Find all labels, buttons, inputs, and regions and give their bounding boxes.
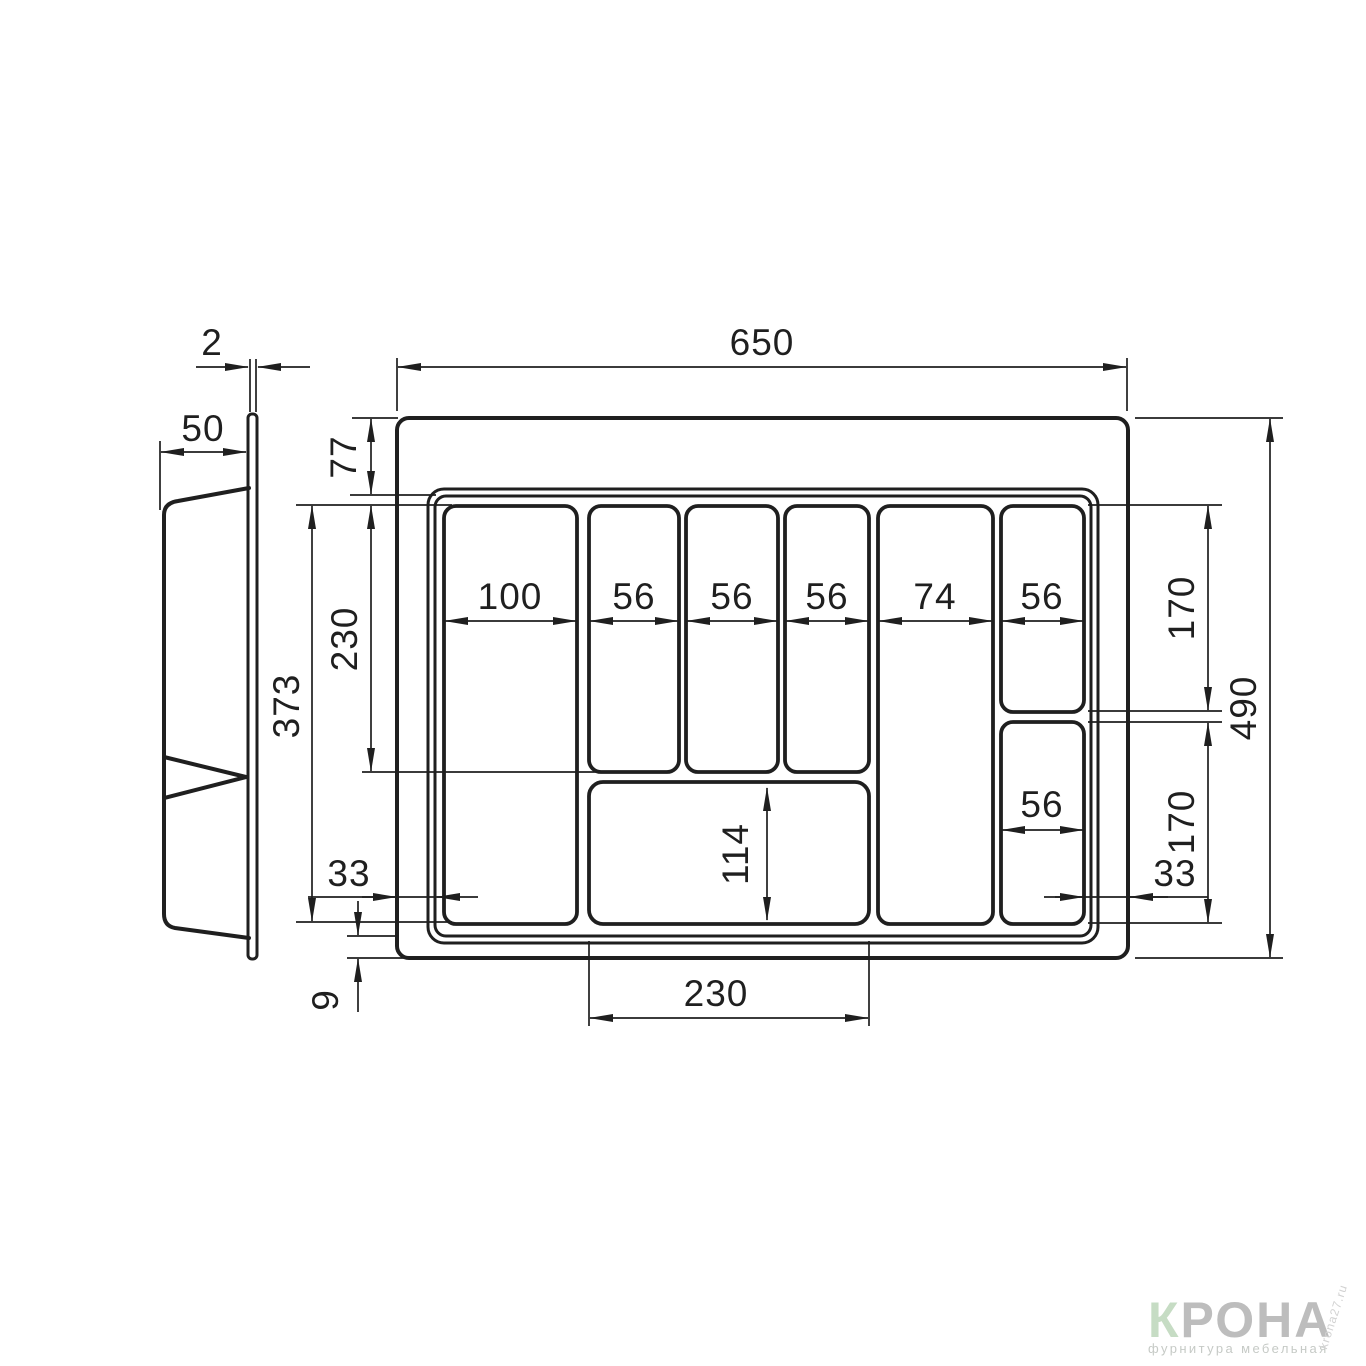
side-plate-outline xyxy=(248,414,257,959)
dim-label-col3: 56 xyxy=(710,576,753,617)
dim-label-bottom-slot-width: 230 xyxy=(684,973,749,1014)
compartment-1 xyxy=(444,506,577,924)
dim-top-rim: 77 xyxy=(323,418,436,495)
dim-label-right-bottom-slot-width: 56 xyxy=(1020,784,1063,825)
dim-label-col5: 74 xyxy=(913,576,956,617)
dim-left-inset: 33 xyxy=(308,853,478,897)
watermark-brand-initial: К xyxy=(1148,1292,1181,1348)
dim-overall-width: 650 xyxy=(397,322,1127,411)
side-profile-view: 2 50 xyxy=(160,322,310,959)
dim-label-upper-row-depth: 230 xyxy=(324,607,365,672)
dim-label-plate-thickness: 2 xyxy=(201,322,223,363)
dim-upper-row-depth: 230 xyxy=(296,505,600,772)
dim-label-overall-depth: 490 xyxy=(1223,676,1264,741)
compartment-2 xyxy=(589,506,679,772)
dim-label-col6: 56 xyxy=(1020,576,1063,617)
watermark-tagline: фурнитура мебельная xyxy=(1148,1341,1329,1356)
dim-bottom-slot-width: 230 xyxy=(589,941,869,1026)
technical-drawing: 2 50 650 xyxy=(0,0,1366,1366)
drawing-canvas: 2 50 650 xyxy=(0,0,1366,1366)
compartment-5 xyxy=(878,506,993,924)
dim-right-bottom-slot-width: 56 xyxy=(1002,784,1083,830)
dim-label-right-bottom-slot-depth: 170 xyxy=(1161,790,1202,855)
side-rib-notch xyxy=(164,757,246,798)
dim-right-top-slot-depth: 170 xyxy=(1088,505,1222,711)
watermark-brand: КРОНА xyxy=(1148,1292,1332,1348)
tray-rim-outer-line xyxy=(428,489,1098,943)
dim-label-col1: 100 xyxy=(478,576,543,617)
dim-label-overall-width: 650 xyxy=(730,322,795,363)
watermark: КРОНА фурнитура мебельная krona27.ru xyxy=(1148,1283,1350,1356)
tray-outer-outline xyxy=(397,418,1128,958)
dim-label-flange-width: 50 xyxy=(181,408,224,449)
watermark-brand-rest: РОНА xyxy=(1181,1292,1333,1348)
dim-label-top-rim: 77 xyxy=(323,435,364,478)
dim-label-col2: 56 xyxy=(612,576,655,617)
dim-bottom-slot-depth: 114 xyxy=(715,788,767,920)
top-view: 650 490 77 230 373 xyxy=(266,322,1283,1026)
dim-label-bottom-rim: 9 xyxy=(305,989,346,1011)
dim-column-widths: 100 56 56 56 74 56 xyxy=(445,576,1083,621)
dim-label-left-inset: 33 xyxy=(327,853,370,894)
dim-label-inner-depth: 373 xyxy=(266,674,307,739)
dim-label-right-top-slot-depth: 170 xyxy=(1161,576,1202,641)
dim-plate-thickness: 2 xyxy=(196,322,310,412)
dim-label-bottom-slot-depth: 114 xyxy=(715,823,756,885)
compartment-3 xyxy=(686,506,778,772)
compartment-4 xyxy=(785,506,869,772)
dim-label-right-inset: 33 xyxy=(1153,853,1196,894)
side-body-outline xyxy=(164,488,249,938)
dim-label-col4: 56 xyxy=(805,576,848,617)
